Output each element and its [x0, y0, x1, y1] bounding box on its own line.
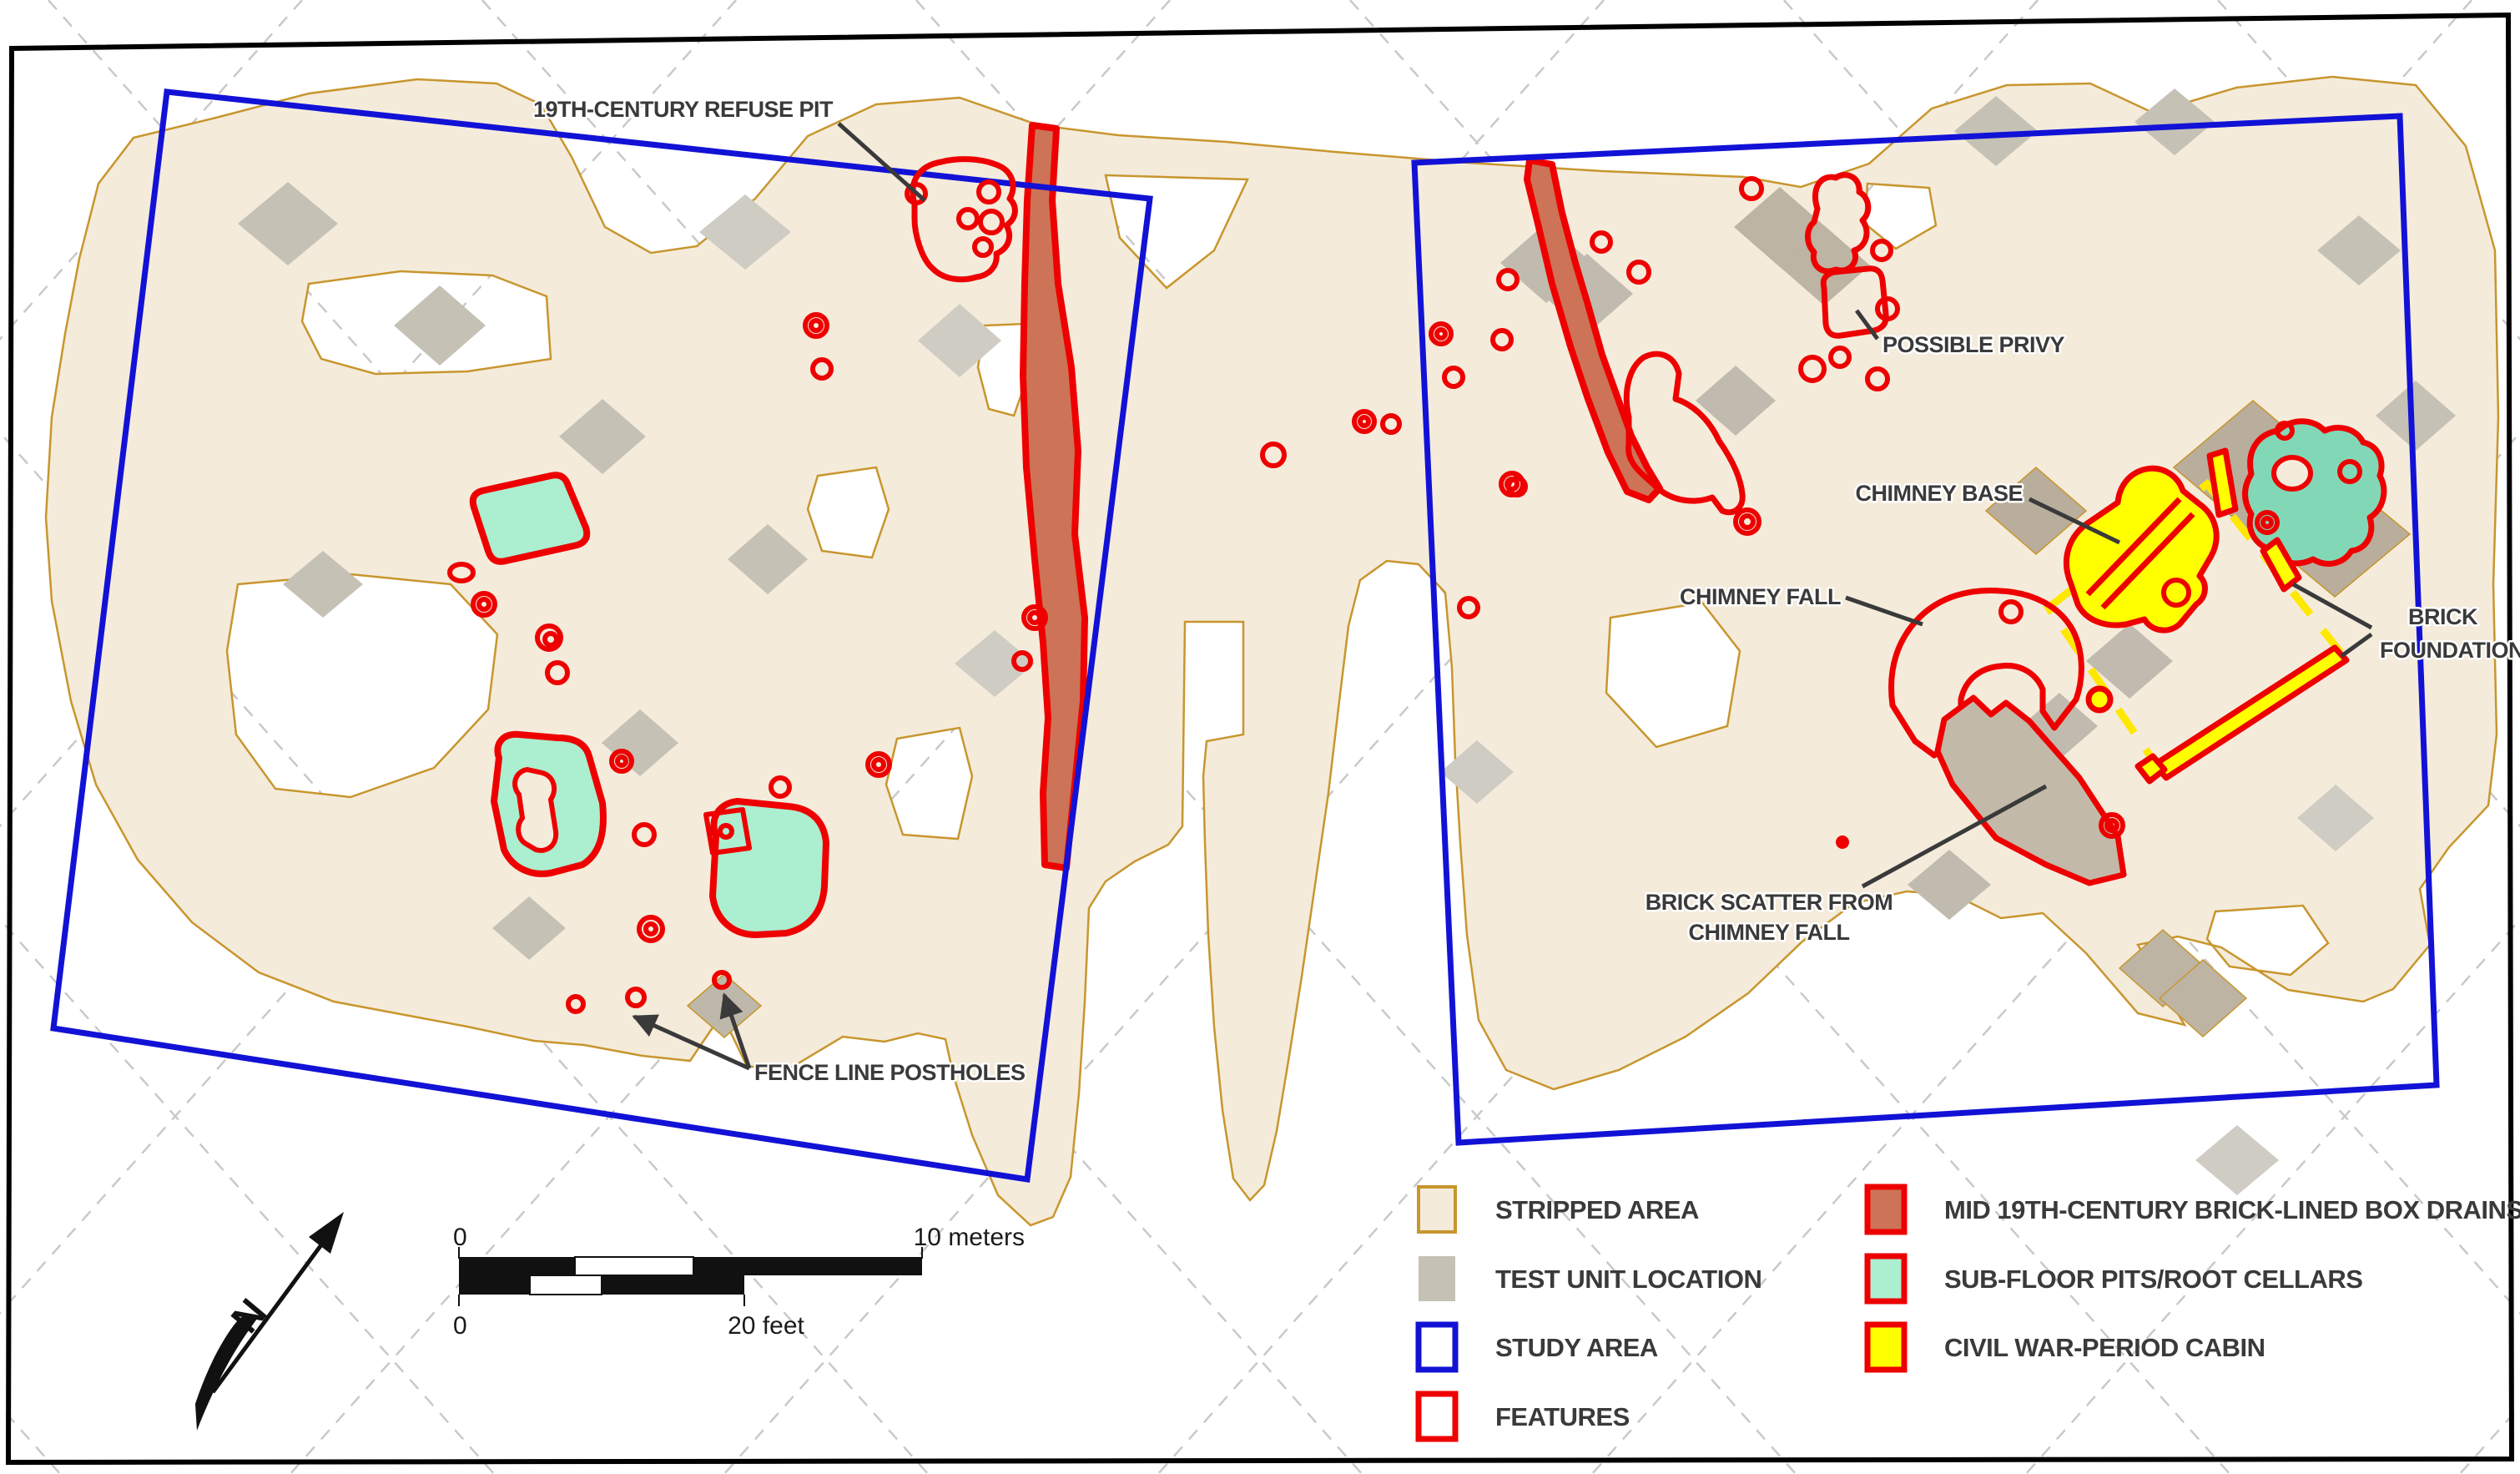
scale-bar: 0 10 meters 0 20 feet	[453, 1224, 1025, 1340]
sub-floor-pit-hole	[2274, 457, 2311, 489]
legend-item-stripped-area: STRIPPED AREA	[1419, 1187, 1699, 1232]
legend-swatch	[1867, 1325, 1904, 1370]
legend-item-study-area: STUDY AREA	[1419, 1325, 1658, 1370]
label-brick-foundations-2: FOUNDATIONS	[2380, 638, 2520, 663]
scale-feet-max: 20 feet	[728, 1312, 804, 1340]
scale-segment	[693, 1257, 922, 1275]
legend-label: CIVIL WAR-PERIOD CABIN	[1944, 1333, 2265, 1362]
scale-meters-zero: 0	[453, 1224, 467, 1251]
label-chimney-fall: CHIMNEY FALL	[1680, 584, 1841, 609]
legend-item-cabin: CIVIL WAR-PERIOD CABIN	[1867, 1325, 2265, 1370]
feature-dot	[1836, 835, 1849, 849]
scale-segment	[459, 1257, 575, 1275]
scale-segment	[575, 1257, 693, 1275]
legend-label: STUDY AREA	[1495, 1333, 1658, 1362]
sub-floor-pit-hole	[515, 770, 556, 851]
legend-item-box-drains: MID 19TH-CENTURY BRICK-LINED BOX DRAINS	[1867, 1187, 2520, 1232]
test-unit	[394, 285, 486, 366]
legend-label: FEATURES	[1495, 1402, 1630, 1431]
north-arrow-head	[309, 1212, 344, 1254]
label-chimney-base: CHIMNEY BASE	[1855, 481, 2023, 506]
legend: STRIPPED AREA TEST UNIT LOCATION STUDY A…	[1419, 1187, 2520, 1439]
legend-label: MID 19TH-CENTURY BRICK-LINED BOX DRAINS	[1944, 1195, 2520, 1224]
sub-floor-pit-east	[2245, 422, 2384, 564]
scale-feet-zero: 0	[453, 1312, 467, 1340]
legend-label: TEST UNIT LOCATION	[1495, 1265, 1761, 1294]
scale-segment	[602, 1275, 744, 1295]
scale-segment	[459, 1275, 530, 1295]
legend-swatch	[1867, 1187, 1904, 1232]
legend-swatch	[1419, 1256, 1455, 1301]
label-brick-scatter-1: BRICK SCATTER FROM	[1646, 890, 1893, 915]
legend-label: STRIPPED AREA	[1495, 1195, 1699, 1224]
sub-floor-pit	[473, 475, 587, 562]
site-map: 19TH-CENTURY REFUSE PIT POSSIBLE PRIVY C…	[0, 0, 2520, 1474]
legend-label: SUB-FLOOR PITS/ROOT CELLARS	[1944, 1265, 2362, 1294]
label-fence-postholes: FENCE LINE POSTHOLES	[754, 1060, 1026, 1085]
label-possible-privy: POSSIBLE PRIVY	[1882, 332, 2065, 357]
legend-item-features: FEATURES	[1419, 1394, 1630, 1439]
label-brick-foundations-1: BRICK	[2408, 604, 2478, 629]
scale-segment	[530, 1275, 602, 1295]
test-unit	[2195, 1125, 2279, 1195]
label-refuse-pit: 19TH-CENTURY REFUSE PIT	[533, 97, 834, 122]
legend-item-sub-floor-pits: SUB-FLOOR PITS/ROOT CELLARS	[1867, 1256, 2362, 1301]
north-arrow: N	[195, 1212, 344, 1431]
sub-floor-pit	[713, 801, 826, 935]
legend-swatch	[1867, 1256, 1904, 1301]
legend-swatch	[1419, 1187, 1455, 1232]
legend-swatch	[1419, 1325, 1455, 1370]
legend-swatch	[1419, 1394, 1455, 1439]
legend-item-test-unit: TEST UNIT LOCATION	[1419, 1256, 1761, 1301]
scale-meters-max: 10 meters	[914, 1224, 1025, 1251]
cabin-post	[2089, 689, 2110, 710]
label-brick-scatter-2: CHIMNEY FALL	[1688, 920, 1849, 945]
